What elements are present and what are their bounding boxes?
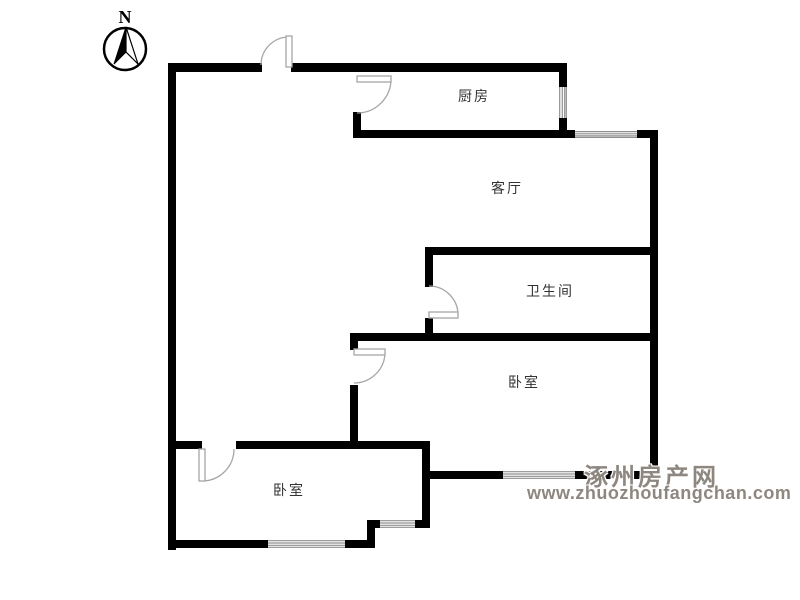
wall-bottom-b xyxy=(345,540,375,548)
door-bathroom-leaf xyxy=(429,312,458,318)
wall-right xyxy=(650,130,658,479)
door-bedroom-left-arc xyxy=(202,449,234,481)
room-label-bedroom-right: 卧室 xyxy=(508,372,540,392)
wall-bathroom-bottom xyxy=(350,333,658,341)
compass-needle-west xyxy=(114,27,126,64)
door-bedroom-right xyxy=(354,349,385,383)
wall-bathroom-left-upper xyxy=(425,247,433,287)
wall-kitchen-right-upper xyxy=(559,63,567,87)
door-bedroom-left xyxy=(199,449,234,481)
wall-step-b xyxy=(415,520,430,528)
compass xyxy=(104,27,146,70)
window-bedroom-right xyxy=(503,471,575,479)
window-kitchen-right xyxy=(559,87,567,118)
door-bedroom-left-leaf xyxy=(199,449,205,481)
room-label-bedroom-left: 卧室 xyxy=(273,480,305,500)
door-bedroom-right-leaf xyxy=(354,349,385,355)
wall-mid-vertical xyxy=(422,441,430,528)
door-bathroom-arc xyxy=(429,286,458,315)
doors xyxy=(199,36,458,481)
window-bedroom-left xyxy=(268,540,345,548)
window-step xyxy=(380,520,415,528)
compass-north-label: N xyxy=(119,7,132,28)
door-bathroom xyxy=(429,286,458,318)
wall-top-right xyxy=(291,63,567,72)
door-entry xyxy=(261,36,292,67)
floor-plan-drawing xyxy=(0,0,800,600)
wall-bedroom-right-bottom-a xyxy=(430,471,503,479)
wall-bedroom-left-top-b xyxy=(236,441,430,449)
watermark-site-url: www.zhuozhoufangchan.com xyxy=(527,483,791,504)
door-entry-leaf xyxy=(286,36,292,67)
wall-top-left xyxy=(168,63,262,72)
door-entry-arc xyxy=(261,37,289,65)
wall-bathroom-top xyxy=(425,247,658,255)
window-living-top xyxy=(575,131,637,138)
wall-bedroom-left-top-a xyxy=(168,441,202,449)
room-label-living-room: 客厅 xyxy=(491,178,523,198)
room-label-kitchen: 厨房 xyxy=(458,86,490,106)
door-bedroom-right-arc xyxy=(354,352,385,383)
room-label-bathroom: 卫生间 xyxy=(526,281,574,301)
door-kitchen-leaf xyxy=(357,76,391,82)
door-kitchen xyxy=(357,76,391,113)
wall-bedroom-right-left-stub xyxy=(350,333,358,350)
door-kitchen-arc xyxy=(357,79,391,113)
floor-plan-page: N 厨房 客厅 卫生间 卧室 卧室 涿州房产网 www.zhuozhoufang… xyxy=(0,0,800,600)
wall-bedroom-right-left xyxy=(350,385,358,449)
wall-left xyxy=(168,63,176,550)
wall-kitchen-bottom xyxy=(353,130,575,138)
wall-bottom-a xyxy=(168,540,268,548)
